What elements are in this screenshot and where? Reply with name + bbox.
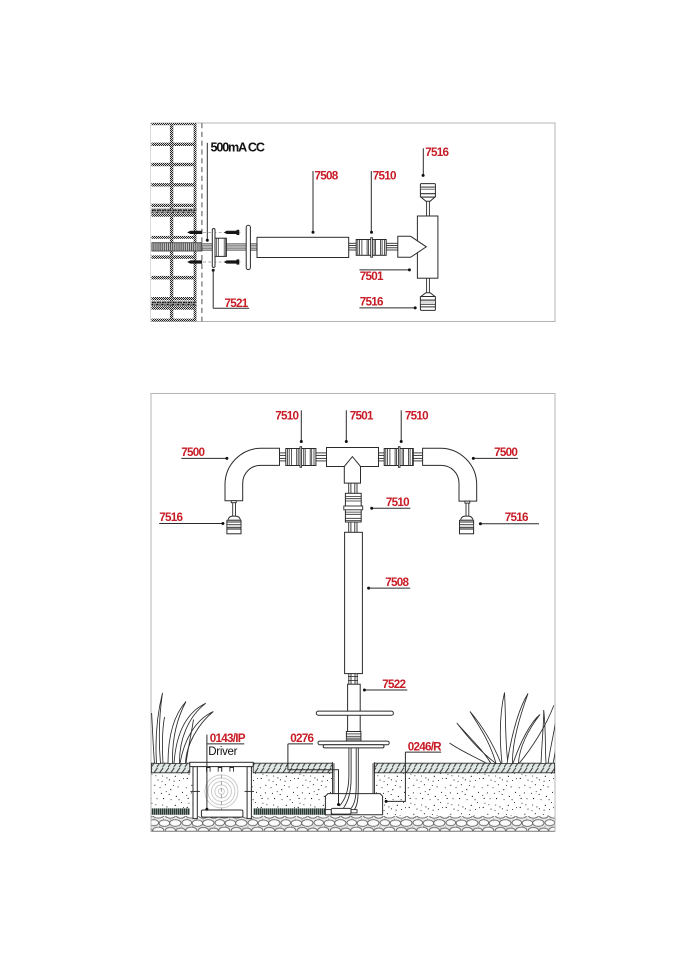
svg-text:0246/R: 0246/R (408, 740, 442, 753)
svg-text:500mA CC: 500mA CC (211, 141, 265, 155)
svg-text:0276: 0276 (290, 732, 314, 745)
svg-text:7510: 7510 (405, 410, 429, 423)
svg-text:0143/IP: 0143/IP (210, 732, 246, 745)
svg-text:7516: 7516 (159, 511, 183, 524)
svg-text:7510: 7510 (275, 410, 299, 423)
svg-text:7522: 7522 (382, 678, 406, 691)
svg-text:7521: 7521 (225, 297, 249, 310)
svg-text:7508: 7508 (315, 170, 339, 183)
svg-text:7516: 7516 (360, 295, 384, 308)
svg-text:7510: 7510 (373, 170, 397, 183)
svg-text:7501: 7501 (350, 410, 374, 423)
svg-text:7501: 7501 (360, 270, 384, 283)
svg-text:Driver: Driver (208, 746, 237, 758)
svg-text:7516: 7516 (425, 146, 449, 159)
svg-text:7500: 7500 (494, 446, 518, 459)
svg-text:7516: 7516 (505, 511, 529, 524)
svg-text:7510: 7510 (386, 496, 410, 509)
svg-text:7508: 7508 (385, 576, 409, 589)
svg-text:7500: 7500 (181, 446, 205, 459)
